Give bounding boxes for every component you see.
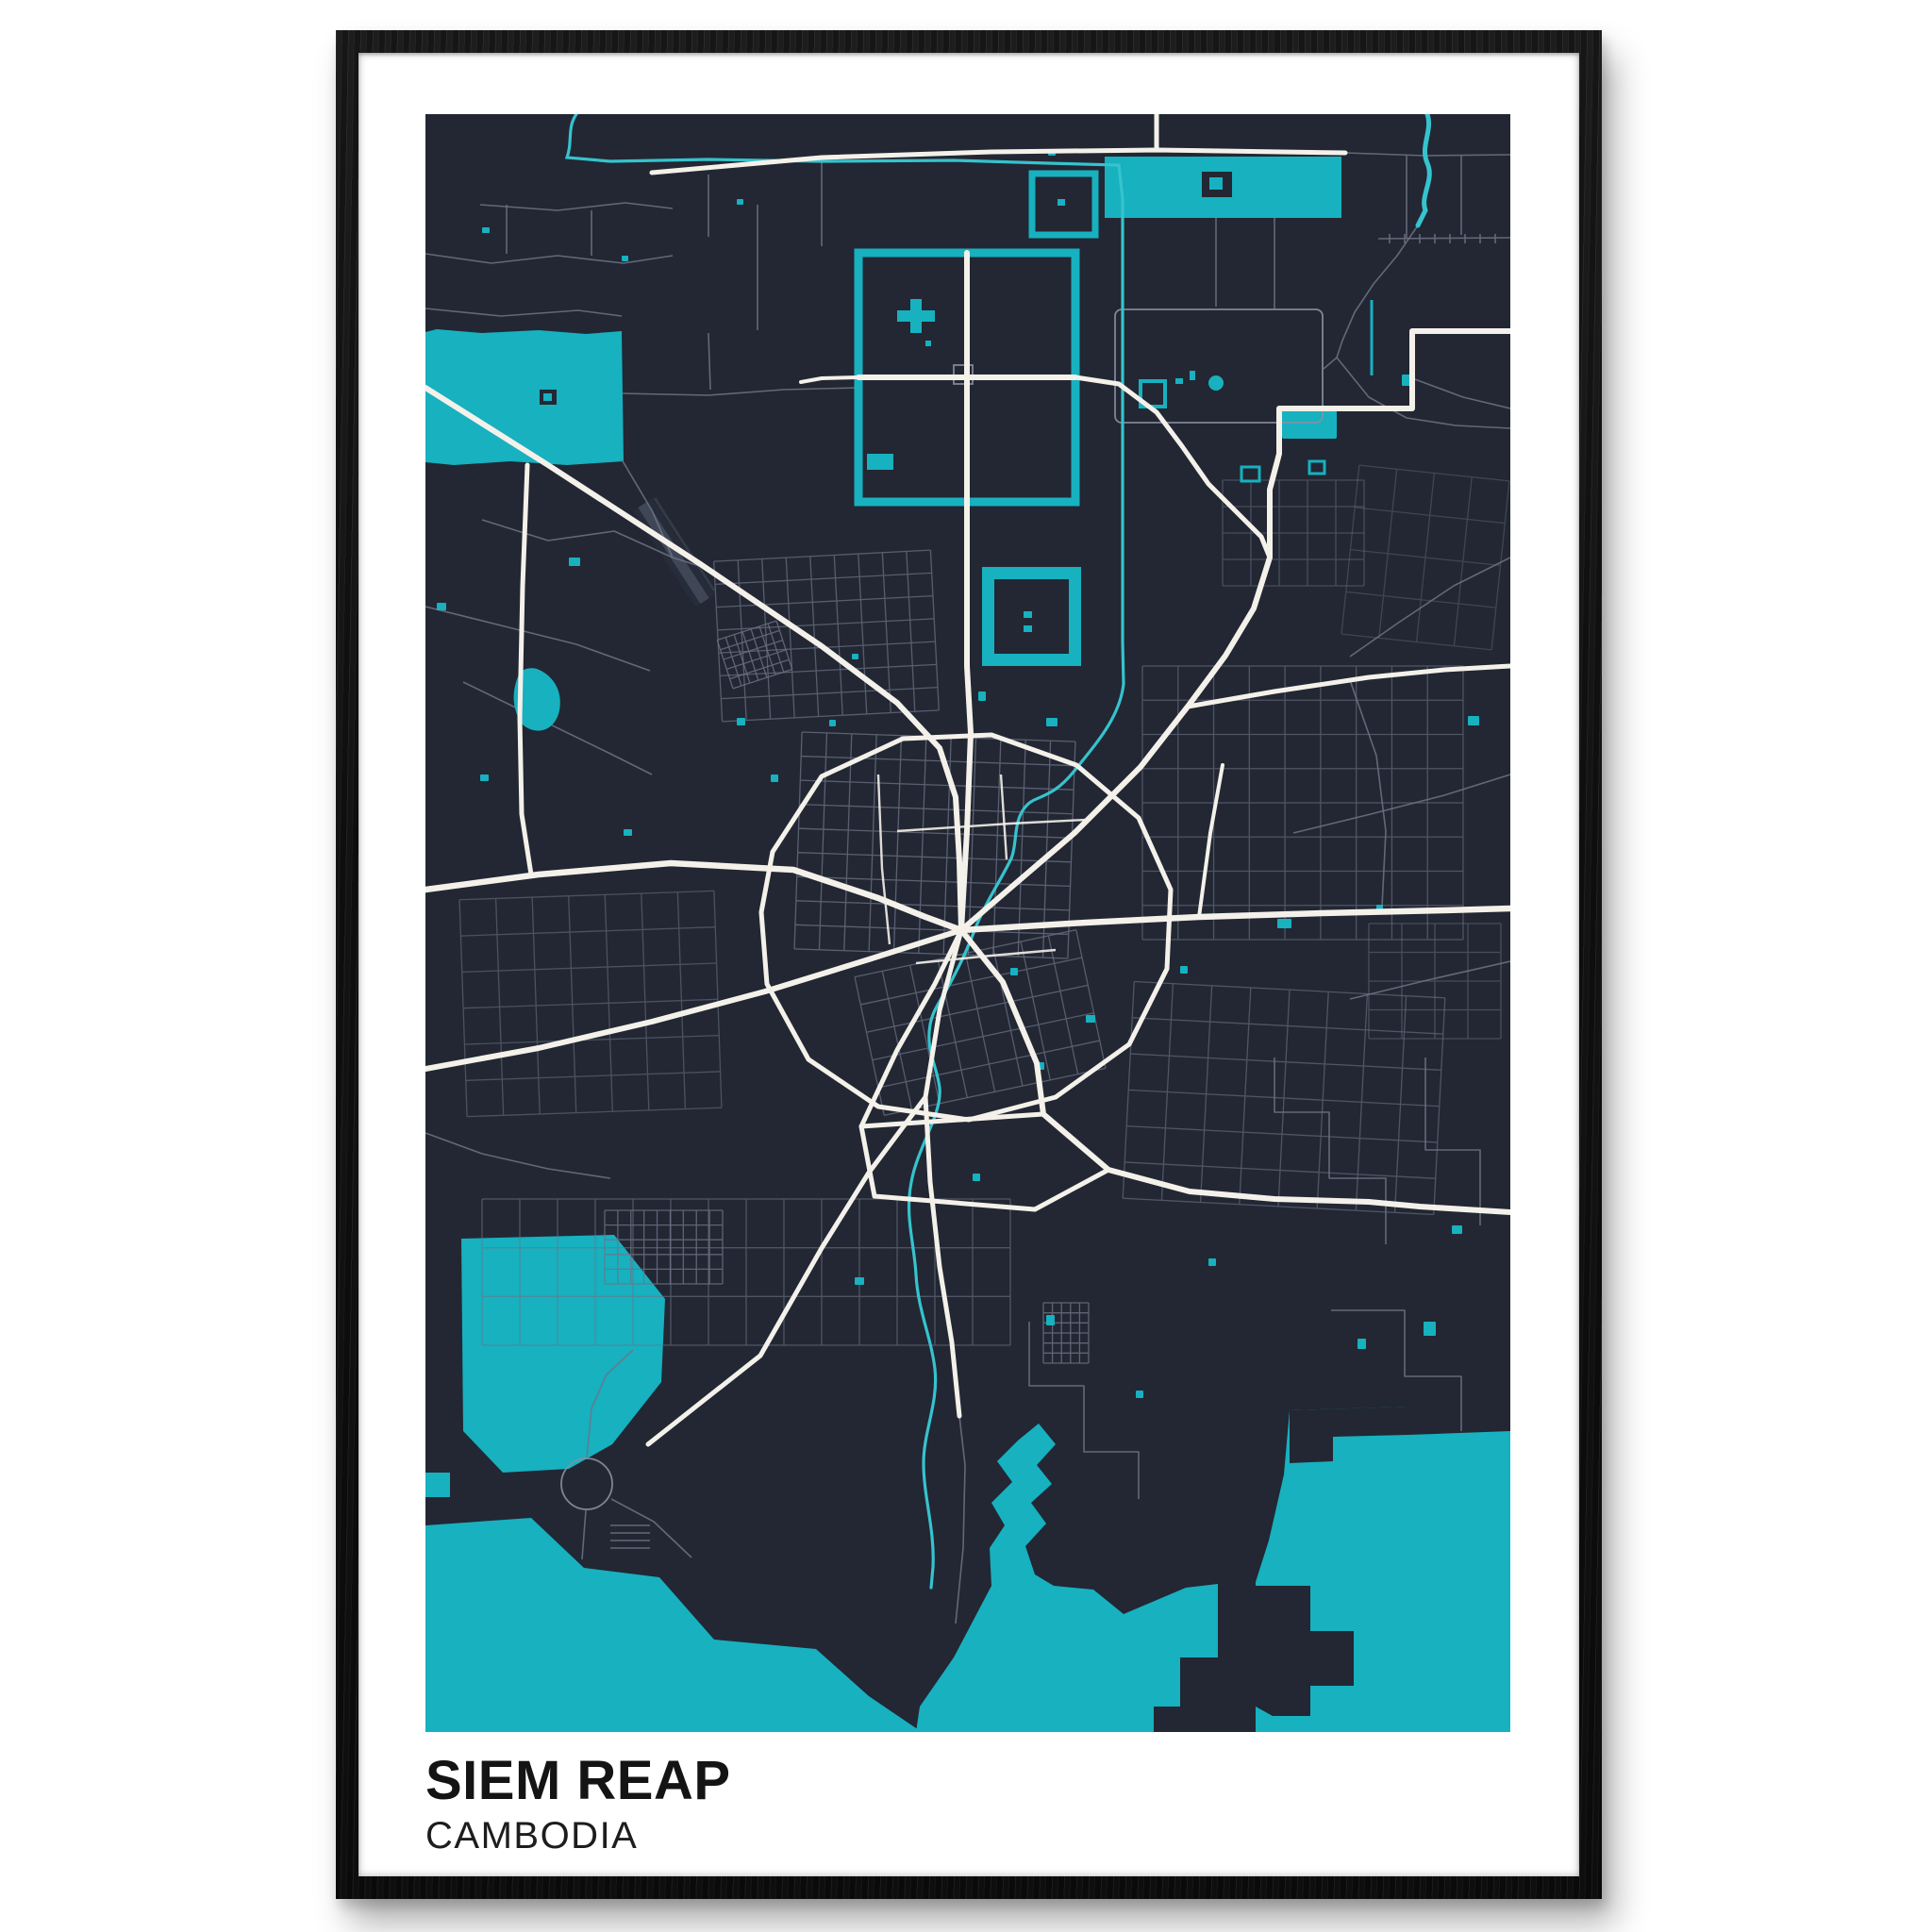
pond [1046,718,1058,726]
pond [1136,1391,1143,1398]
west-baray [425,329,624,465]
pond [569,558,580,566]
map-svg [425,114,1510,1732]
pond [1086,1015,1095,1023]
pond-bit [1175,378,1183,384]
pond [855,1277,864,1285]
preah-khan-pond [1058,199,1065,206]
temple-pond-dot [925,341,931,346]
pond [852,654,858,659]
pond [624,829,632,836]
poster-mat: SIEM REAP CAMBODIA [358,53,1579,1876]
pond [1452,1225,1462,1234]
pond [973,1174,980,1181]
pond [1468,716,1479,725]
pond [737,718,745,725]
pond [642,1287,650,1294]
thom-corner-pond [867,454,893,470]
pond-bit [1190,371,1195,380]
poster-subtitle: CAMBODIA [425,1814,1510,1857]
pond [622,256,628,261]
product-photo: SIEM REAP CAMBODIA [0,0,1932,1932]
pond [482,227,490,233]
pond [437,603,446,610]
round-pond [1208,375,1224,391]
pond [829,720,836,726]
pond [978,691,986,701]
map-poster: SIEM REAP CAMBODIA [425,114,1510,1857]
west-mebon-pond [543,393,552,401]
pond [1046,1315,1055,1325]
srah-srang [1282,409,1337,439]
angkor-wat-basin-a [1024,611,1032,618]
pond [1357,1339,1366,1349]
poster-caption: SIEM REAP CAMBODIA [425,1753,1510,1857]
pond [1277,919,1291,928]
neak-pean-pond [1209,177,1223,190]
pond [567,1581,578,1591]
poster-frame: SIEM REAP CAMBODIA [336,30,1602,1899]
poster-title: SIEM REAP [425,1753,1510,1810]
pond [1424,1322,1436,1336]
lake-edge-notch [425,1473,450,1497]
pond [1010,968,1018,975]
map-art [425,114,1510,1732]
paddy-pond [680,1661,701,1710]
angkor-wat-basin-b [1024,625,1032,632]
pond [1180,966,1188,974]
pond [1208,1258,1216,1266]
pond [771,774,778,782]
pond [480,774,489,781]
pond [737,199,743,205]
